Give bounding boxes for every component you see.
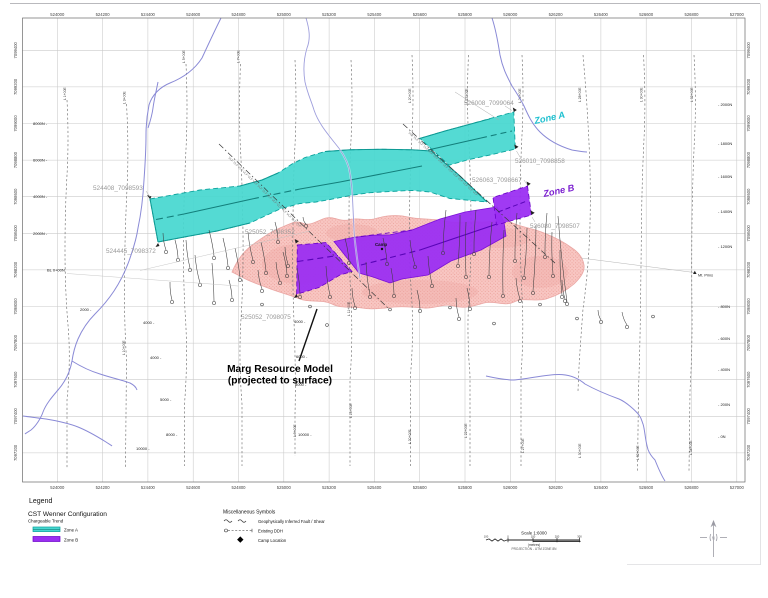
svg-text:N: N xyxy=(712,536,715,541)
svg-text:4000 -: 4000 - xyxy=(294,319,306,324)
svg-text:526080_7098507: 526080_7098507 xyxy=(530,223,580,230)
svg-text:7099200: 7099200 xyxy=(746,78,751,95)
svg-text:L 7+00E: L 7+00E xyxy=(237,50,241,63)
svg-text:526400: 526400 xyxy=(594,12,609,17)
svg-text:Miscellaneous Symbols: Miscellaneous Symbols xyxy=(223,510,276,516)
svg-text:- 2000N: - 2000N xyxy=(718,102,732,107)
svg-text:8000 -: 8000 - xyxy=(166,432,178,437)
svg-text:200: 200 xyxy=(555,534,560,538)
svg-text:7098200: 7098200 xyxy=(746,261,751,278)
svg-text:300: 300 xyxy=(577,534,582,538)
svg-text:7099400: 7099400 xyxy=(13,41,18,58)
svg-text:7099200: 7099200 xyxy=(13,78,18,95)
svg-text:525600: 525600 xyxy=(413,485,428,490)
svg-text:525600: 525600 xyxy=(413,12,428,17)
svg-text:524000: 524000 xyxy=(50,485,65,490)
svg-text:7097600: 7097600 xyxy=(13,371,18,388)
svg-text:Zone A: Zone A xyxy=(64,528,78,533)
svg-text:7097800: 7097800 xyxy=(13,334,18,351)
svg-text:L 20+00E: L 20+00E xyxy=(408,429,412,444)
svg-text:- 1800N: - 1800N xyxy=(718,141,732,146)
svg-text:L 3+00E: L 3+00E xyxy=(123,91,127,104)
svg-text:524800: 524800 xyxy=(232,485,247,490)
svg-text:10000 -: 10000 - xyxy=(298,432,312,437)
svg-text:Camp Location: Camp Location xyxy=(258,538,287,543)
svg-text:Chargeable Trend: Chargeable Trend xyxy=(28,519,64,524)
svg-text:2000 -: 2000 - xyxy=(80,307,92,312)
svg-text:6000 -: 6000 - xyxy=(296,354,308,359)
svg-text:524000: 524000 xyxy=(50,12,65,17)
svg-text:4000 -: 4000 - xyxy=(150,355,162,360)
svg-text:Marg Resource Model: Marg Resource Model xyxy=(227,364,333,375)
svg-text:L 11+00E: L 11+00E xyxy=(347,301,351,316)
svg-text:527000: 527000 xyxy=(730,12,745,17)
svg-text:7098400: 7098400 xyxy=(746,224,751,241)
svg-text:7097400: 7097400 xyxy=(746,407,751,424)
svg-text:524600: 524600 xyxy=(186,485,201,490)
svg-text:L 32+00E: L 32+00E xyxy=(690,87,694,102)
svg-text:7098800: 7098800 xyxy=(13,151,18,168)
svg-text:7099400: 7099400 xyxy=(746,41,751,58)
svg-text:L 32+00E: L 32+00E xyxy=(636,445,640,460)
svg-text:4000N -: 4000N - xyxy=(33,194,48,199)
svg-text:524800: 524800 xyxy=(232,12,247,17)
svg-text:7099000: 7099000 xyxy=(13,115,18,132)
svg-text:L 30+00E: L 30+00E xyxy=(640,87,644,102)
svg-text:100: 100 xyxy=(531,534,536,538)
svg-text:526010_7098858: 526010_7098858 xyxy=(515,158,565,165)
svg-text:Geophysically Inferred Fault /: Geophysically Inferred Fault / Shear xyxy=(258,519,325,524)
svg-text:Existing DDH: Existing DDH xyxy=(258,529,283,534)
svg-text:10000 -: 10000 - xyxy=(136,446,150,451)
svg-text:L 34+00E: L 34+00E xyxy=(689,440,693,455)
svg-text:7098600: 7098600 xyxy=(13,188,18,205)
svg-text:(projected to surface): (projected to surface) xyxy=(228,376,332,387)
svg-text:525800: 525800 xyxy=(458,485,473,490)
svg-text:526063_7098667: 526063_7098667 xyxy=(472,177,522,184)
svg-text:526600: 526600 xyxy=(639,12,654,17)
svg-text:- 1200N: - 1200N xyxy=(718,244,732,249)
svg-text:L 22+00E: L 22+00E xyxy=(464,423,468,438)
svg-text:Camp: Camp xyxy=(375,242,388,247)
svg-text:- 200N: - 200N xyxy=(718,402,730,407)
svg-text:524200: 524200 xyxy=(96,485,111,490)
svg-text:526600: 526600 xyxy=(639,485,654,490)
svg-text:- 800N: - 800N xyxy=(718,304,730,309)
svg-text:526000: 526000 xyxy=(503,12,518,17)
svg-text:7097800: 7097800 xyxy=(746,334,751,351)
svg-text:7097200: 7097200 xyxy=(746,444,751,461)
svg-text:526200: 526200 xyxy=(549,12,564,17)
svg-text:L 13+00E: L 13+00E xyxy=(349,403,353,418)
svg-text:100: 100 xyxy=(484,534,489,538)
svg-text:L 20+00E: L 20+00E xyxy=(408,88,412,103)
svg-text:525400: 525400 xyxy=(367,12,382,17)
svg-text:7099000: 7099000 xyxy=(746,115,751,132)
svg-text:524400: 524400 xyxy=(141,485,156,490)
svg-text:7097600: 7097600 xyxy=(746,371,751,388)
svg-text:524400: 524400 xyxy=(141,12,156,17)
svg-text:4000 -: 4000 - xyxy=(143,320,155,325)
svg-text:L 9+00E: L 9+00E xyxy=(293,424,297,437)
svg-text:Legend: Legend xyxy=(29,498,52,505)
svg-text:526800: 526800 xyxy=(685,12,700,17)
svg-text:525000: 525000 xyxy=(277,485,292,490)
svg-text:L 1+00E: L 1+00E xyxy=(63,87,67,100)
svg-text:Zone B: Zone B xyxy=(64,538,78,543)
svg-text:PROJECTION - UTM ZONE 8N: PROJECTION - UTM ZONE 8N xyxy=(512,547,558,551)
svg-text:524445_7098372: 524445_7098372 xyxy=(106,248,156,255)
svg-text:524200: 524200 xyxy=(96,12,111,17)
svg-text:526800: 526800 xyxy=(685,485,700,490)
svg-text:7098400: 7098400 xyxy=(13,224,18,241)
svg-text:Mt. Prins: Mt. Prins xyxy=(698,274,713,278)
svg-text:- 1600N: - 1600N xyxy=(718,174,732,179)
svg-text:526008_7099064: 526008_7099064 xyxy=(464,100,514,107)
svg-text:2000N -: 2000N - xyxy=(33,231,48,236)
svg-text:525052_7098075: 525052_7098075 xyxy=(241,314,291,321)
svg-text:5000 -: 5000 - xyxy=(160,397,172,402)
svg-text:L 5+00E: L 5+00E xyxy=(182,50,186,63)
svg-text:8000N -: 8000N - xyxy=(33,121,48,126)
svg-text:- 400N: - 400N xyxy=(718,367,730,372)
svg-text:- 600N: - 600N xyxy=(718,336,730,341)
svg-text:526000: 526000 xyxy=(503,485,518,490)
svg-text:7098200: 7098200 xyxy=(13,261,18,278)
svg-text:BL 0+00N: BL 0+00N xyxy=(47,268,65,273)
svg-text:525000: 525000 xyxy=(277,12,292,17)
svg-text:525400: 525400 xyxy=(367,485,382,490)
svg-text:524600: 524600 xyxy=(186,12,201,17)
svg-text:527000: 527000 xyxy=(730,485,745,490)
svg-text:526200: 526200 xyxy=(549,485,564,490)
svg-text:525052_7098352: 525052_7098352 xyxy=(245,229,295,236)
svg-text:L 27+00E: L 27+00E xyxy=(521,438,525,453)
svg-text:6000N -: 6000N - xyxy=(33,158,48,163)
svg-text:7098800: 7098800 xyxy=(746,151,751,168)
svg-text:- 1400N: - 1400N xyxy=(718,209,732,214)
svg-text:7097200: 7097200 xyxy=(13,444,18,461)
svg-text:CST Wenner Configuration: CST Wenner Configuration xyxy=(28,511,107,518)
svg-text:7098000: 7098000 xyxy=(746,298,751,315)
svg-text:L 30+00E: L 30+00E xyxy=(578,443,582,458)
svg-text:525200: 525200 xyxy=(322,12,337,17)
svg-text:524408_7098593: 524408_7098593 xyxy=(93,185,143,192)
svg-text:7098600: 7098600 xyxy=(746,188,751,205)
svg-text:L 10+00E: L 10+00E xyxy=(122,340,126,355)
svg-text:525200: 525200 xyxy=(322,485,337,490)
svg-text:L 28+00E: L 28+00E xyxy=(578,87,582,102)
svg-text:- 0N: - 0N xyxy=(718,434,726,439)
svg-text:7097400: 7097400 xyxy=(13,407,18,424)
svg-text:526400: 526400 xyxy=(594,485,609,490)
svg-text:7098000: 7098000 xyxy=(13,298,18,315)
svg-text:525800: 525800 xyxy=(458,12,473,17)
